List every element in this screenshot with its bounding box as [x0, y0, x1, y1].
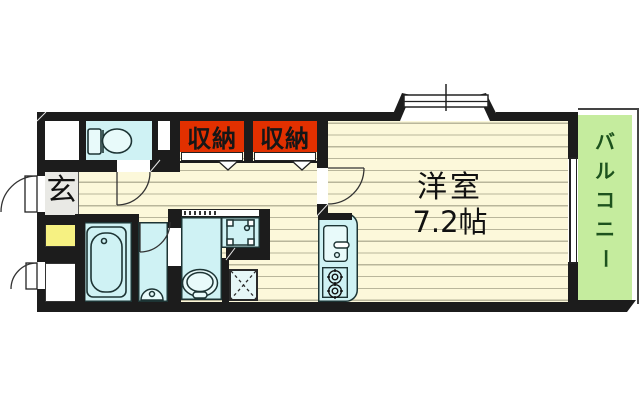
toilet-room	[86, 121, 152, 163]
wall-segment	[79, 121, 86, 163]
wall-segment	[150, 160, 180, 172]
wall-closet-divider	[244, 121, 253, 161]
storage-door-opening	[37, 262, 45, 289]
closet-left: 収納	[180, 121, 244, 152]
wall-room-divider-stub	[317, 204, 328, 216]
wall-bath-divider	[132, 222, 138, 302]
wall-segment	[37, 160, 117, 172]
closet-right-door-track	[254, 152, 316, 161]
balcony-outer-line-top	[578, 108, 639, 110]
main-room-size: 7.2帖	[393, 207, 507, 237]
wall-top-right	[496, 112, 578, 121]
closet-right-label: 収納	[260, 119, 310, 154]
wall-segment	[85, 214, 139, 222]
bathroom	[84, 222, 132, 302]
washroom	[138, 222, 168, 302]
floor-plan: 収納 収納	[0, 0, 640, 400]
wall-segment	[226, 248, 270, 260]
entrance-label: 玄	[45, 175, 78, 207]
balcony-wall-bottom	[578, 300, 636, 312]
wall-room-divider-upper	[317, 121, 328, 168]
wall-segment	[222, 258, 229, 302]
wall-segment	[75, 214, 85, 302]
wall-bottom	[37, 302, 578, 312]
closet-left-door-track	[181, 152, 243, 161]
wall-top-left	[37, 112, 396, 121]
wall-niche	[158, 121, 170, 150]
entrance-door-icon	[1, 176, 37, 212]
kitchen-sink	[323, 225, 348, 262]
closet-right: 収納	[253, 121, 317, 152]
vanity-room	[181, 217, 222, 300]
refrigerator-space	[229, 269, 258, 301]
storage-door-icon	[11, 263, 37, 289]
main-room-name: 洋室	[398, 172, 502, 204]
balcony-outer-line-right	[637, 108, 639, 304]
meter-box-room	[45, 121, 79, 163]
closet-left-label: 収納	[187, 119, 237, 154]
balcony-label: バルコニー	[591, 128, 619, 298]
toilet-door-opening	[117, 160, 150, 172]
storage-room-small	[45, 263, 77, 302]
wall-segment	[45, 247, 77, 263]
shoe-box	[45, 224, 77, 247]
wall-segment	[180, 161, 317, 163]
entrance-door-opening	[37, 176, 45, 212]
wall-segment	[45, 215, 78, 225]
laundry-nook	[221, 217, 260, 248]
stove-top	[322, 267, 348, 298]
washroom-pass-opening	[168, 228, 181, 266]
room-door-opening	[317, 168, 328, 204]
balcony-window	[568, 157, 578, 264]
accordion-door-dots	[184, 211, 218, 215]
